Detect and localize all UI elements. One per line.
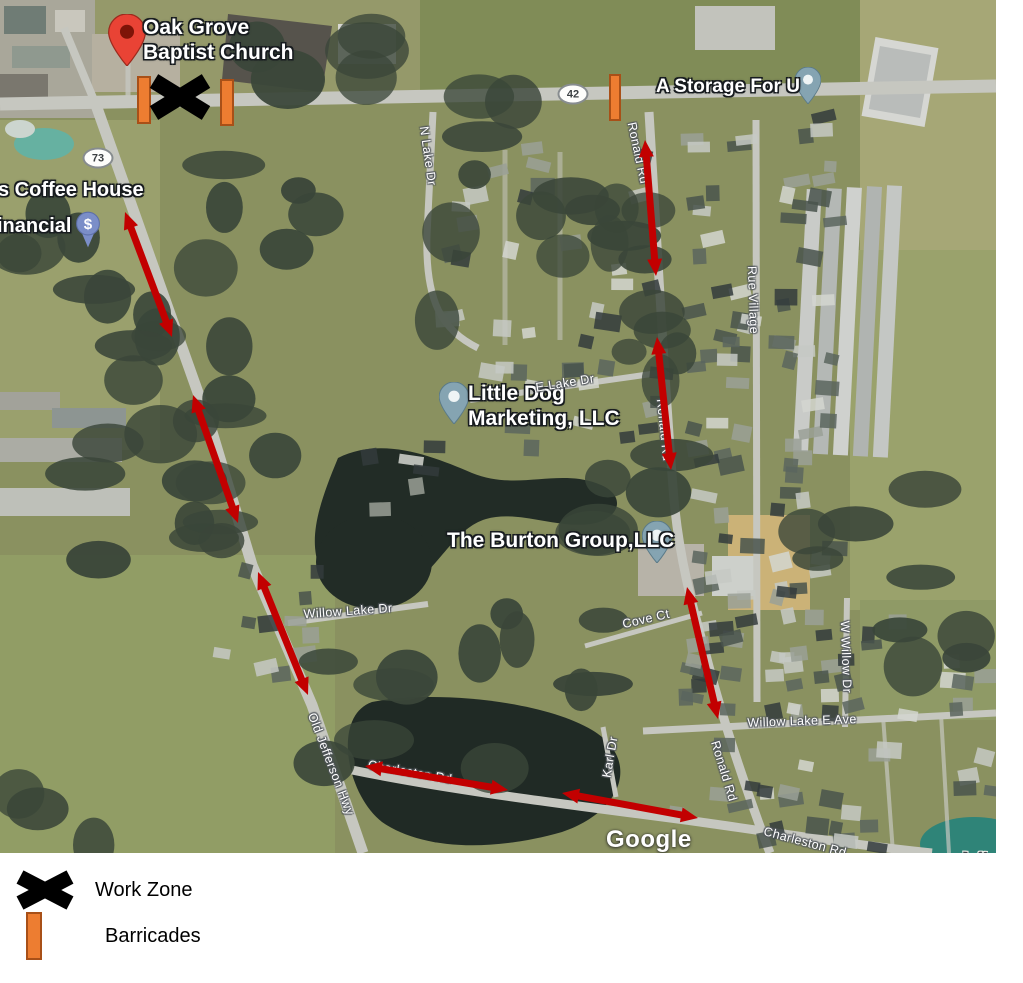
legend-label: Work Zone <box>95 879 192 902</box>
financial-label: inancial <box>0 215 71 239</box>
financial-pin-icon: $ <box>75 210 101 253</box>
the-burton-group-label: The Burton Group,LLC <box>447 529 674 554</box>
road-label: Karl Dr <box>599 735 620 779</box>
legend-item: Work Zone <box>0 867 192 913</box>
road-label: Willow Lake Dr <box>303 601 393 621</box>
road-label: Ronald Rd <box>654 398 674 462</box>
legend-label: Barricades <box>105 925 201 948</box>
legend-item: Barricades <box>0 913 201 959</box>
oak-grove-baptist-church-pin-icon <box>108 14 146 71</box>
road-label: N Lake Dr <box>417 125 439 186</box>
poi-label-line: A Storage For U <box>656 76 800 98</box>
road-label: Ronald Rd <box>625 121 652 185</box>
poi-label-line: The Burton Group,LLC <box>447 529 674 554</box>
road-label: Charleston Rd <box>762 824 848 853</box>
work-zone-x-icon <box>0 870 95 910</box>
road-label: Ronald Rd <box>708 739 740 803</box>
poi-label-line: inancial <box>0 215 71 239</box>
poi-label-line: s Coffee House <box>0 179 144 203</box>
route-shield: 42 <box>558 84 589 105</box>
poi-label-line: Marketing, LLC <box>468 407 620 432</box>
barricade-marker <box>609 74 621 121</box>
road-label: Cove Ct <box>621 607 671 631</box>
poi-label-line: Baptist Church <box>143 41 294 66</box>
barricade-icon <box>0 912 105 960</box>
svg-text:$: $ <box>84 216 93 233</box>
little-dog-marketing-pin-icon <box>439 382 469 429</box>
barricade-marker <box>220 79 234 126</box>
oak-grove-baptist-church-label: Oak GroveBaptist Church <box>143 16 294 66</box>
satellite-map: Oak GroveBaptist Churchs Coffee House$in… <box>0 0 996 853</box>
road-label: W Willow Dr <box>838 621 855 694</box>
coffee-house-label: s Coffee House <box>0 179 144 203</box>
road-label: Old Jefferson Hwy <box>305 711 357 818</box>
poi-label-line: Oak Grove <box>143 16 294 41</box>
road-label: Willow Lake E Ave <box>747 712 857 730</box>
road-label: Charleston Rd <box>367 758 453 787</box>
legend: Work ZoneBarricades <box>0 853 1023 983</box>
a-storage-for-u-label: A Storage For U <box>656 76 800 98</box>
route-shield: 73 <box>83 148 114 169</box>
google-watermark: Google <box>606 826 692 853</box>
work-zone-marker <box>149 72 211 127</box>
road-label: Rue Village <box>745 266 761 335</box>
map-labels-layer: Oak GroveBaptist Churchs Coffee House$in… <box>0 0 996 853</box>
barricade-swatch <box>26 912 42 960</box>
